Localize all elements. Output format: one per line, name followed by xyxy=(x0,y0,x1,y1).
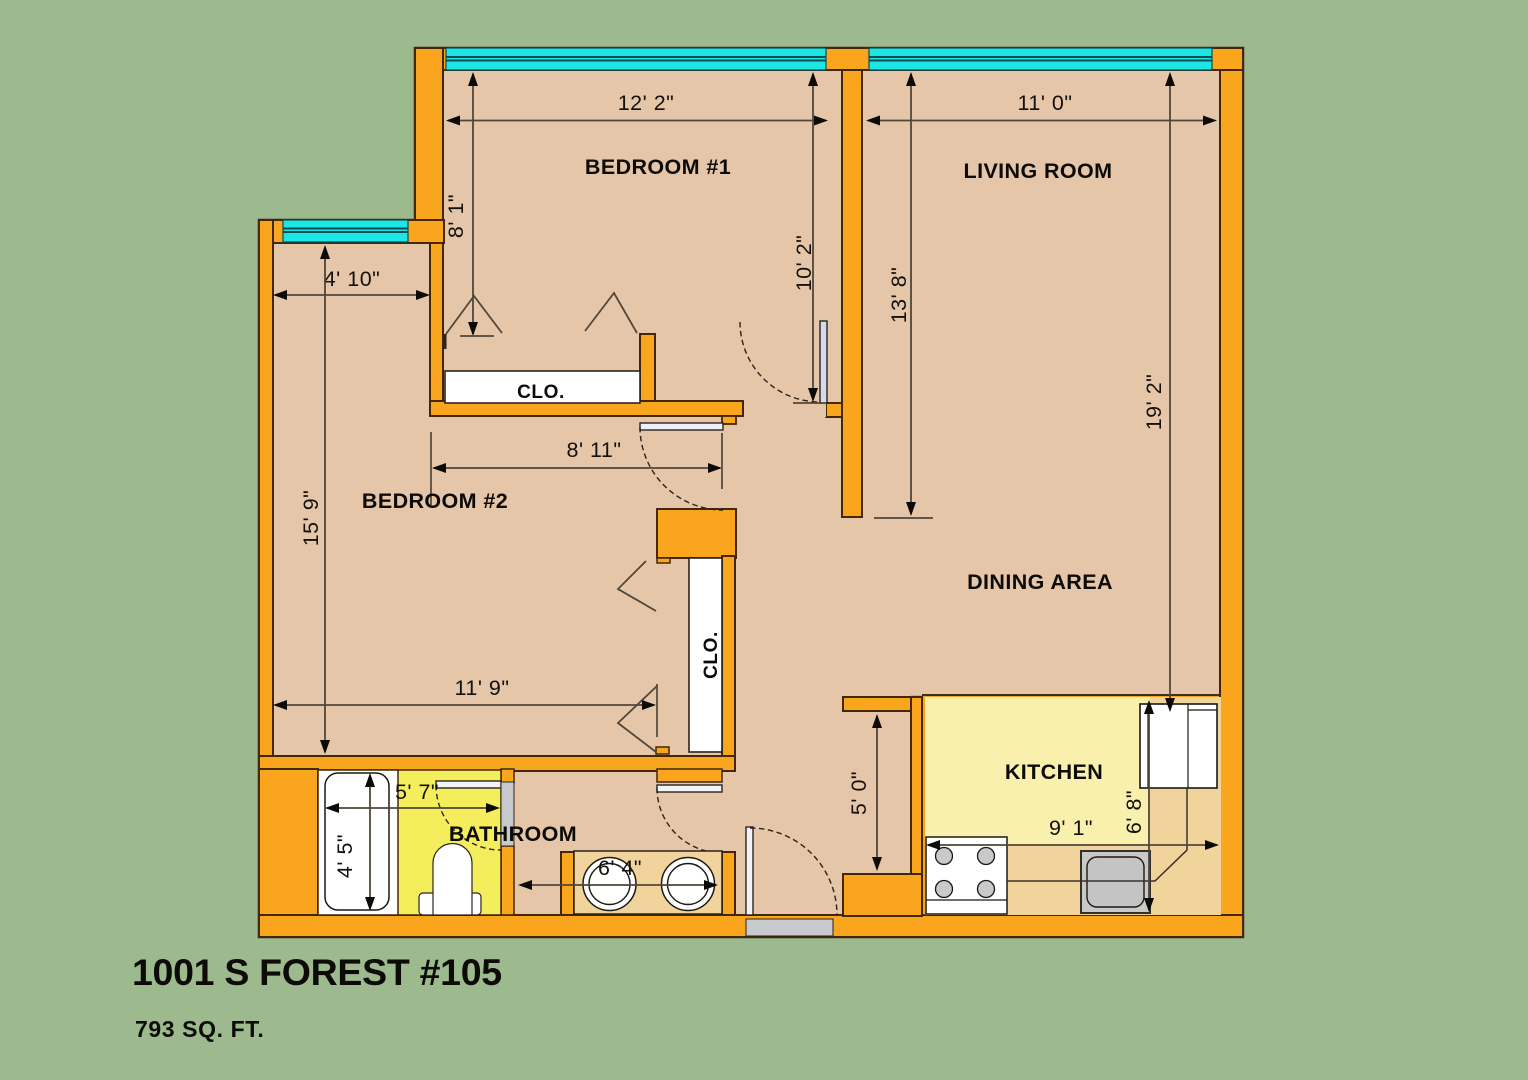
svg-text:LIVING ROOM: LIVING ROOM xyxy=(964,159,1113,183)
svg-text:BATHROOM: BATHROOM xyxy=(449,822,577,846)
svg-text:19' 2": 19' 2" xyxy=(1142,374,1166,431)
svg-text:9' 1": 9' 1" xyxy=(1049,816,1093,840)
svg-text:1001 S FOREST #105: 1001 S FOREST #105 xyxy=(132,951,502,993)
svg-text:8' 11": 8' 11" xyxy=(567,438,622,462)
svg-text:4' 10": 4' 10" xyxy=(324,267,381,291)
svg-text:CLO.: CLO. xyxy=(701,631,722,679)
svg-text:13' 8": 13' 8" xyxy=(887,267,911,324)
svg-text:5' 0": 5' 0" xyxy=(847,771,871,815)
svg-text:11' 9": 11' 9" xyxy=(455,676,510,700)
svg-text:DINING AREA: DINING AREA xyxy=(967,570,1113,594)
svg-text:12' 2": 12' 2" xyxy=(618,91,675,115)
svg-text:6' 8": 6' 8" xyxy=(1122,790,1146,834)
svg-text:793 SQ. FT.: 793 SQ. FT. xyxy=(135,1016,264,1042)
svg-text:4' 5": 4' 5" xyxy=(333,834,357,878)
svg-text:10' 2": 10' 2" xyxy=(792,235,816,292)
svg-text:8' 1": 8' 1" xyxy=(444,194,468,238)
svg-text:CLO.: CLO. xyxy=(517,382,565,403)
svg-text:15' 9": 15' 9" xyxy=(299,490,323,547)
svg-text:5' 7": 5' 7" xyxy=(395,780,439,804)
svg-text:BEDROOM #2: BEDROOM #2 xyxy=(362,489,508,513)
svg-text:BEDROOM #1: BEDROOM #1 xyxy=(585,155,731,179)
svg-text:11' 0": 11' 0" xyxy=(1018,91,1073,115)
svg-text:6' 4": 6' 4" xyxy=(598,856,642,880)
svg-text:KITCHEN: KITCHEN xyxy=(1005,760,1103,784)
